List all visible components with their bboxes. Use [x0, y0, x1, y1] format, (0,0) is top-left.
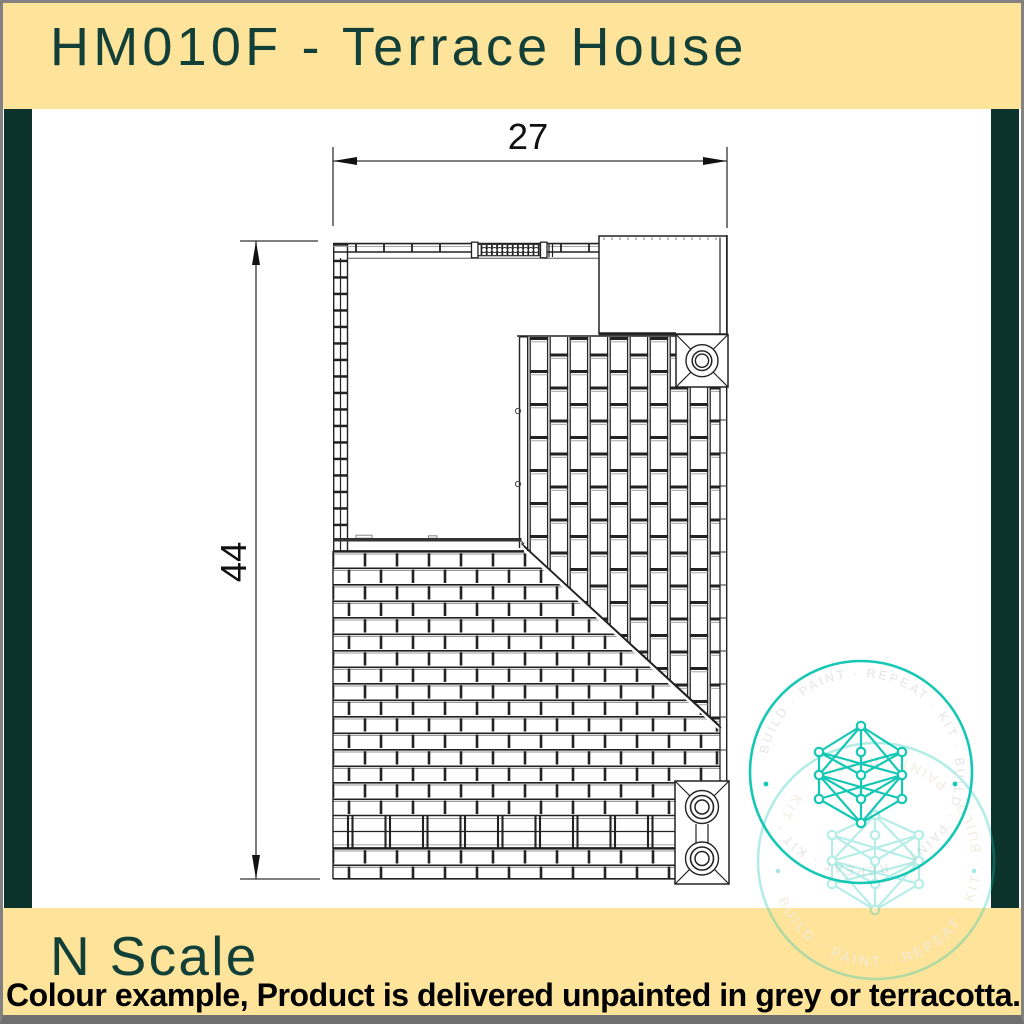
svg-text:44: 44 [213, 542, 254, 583]
svg-text:27: 27 [508, 116, 549, 157]
